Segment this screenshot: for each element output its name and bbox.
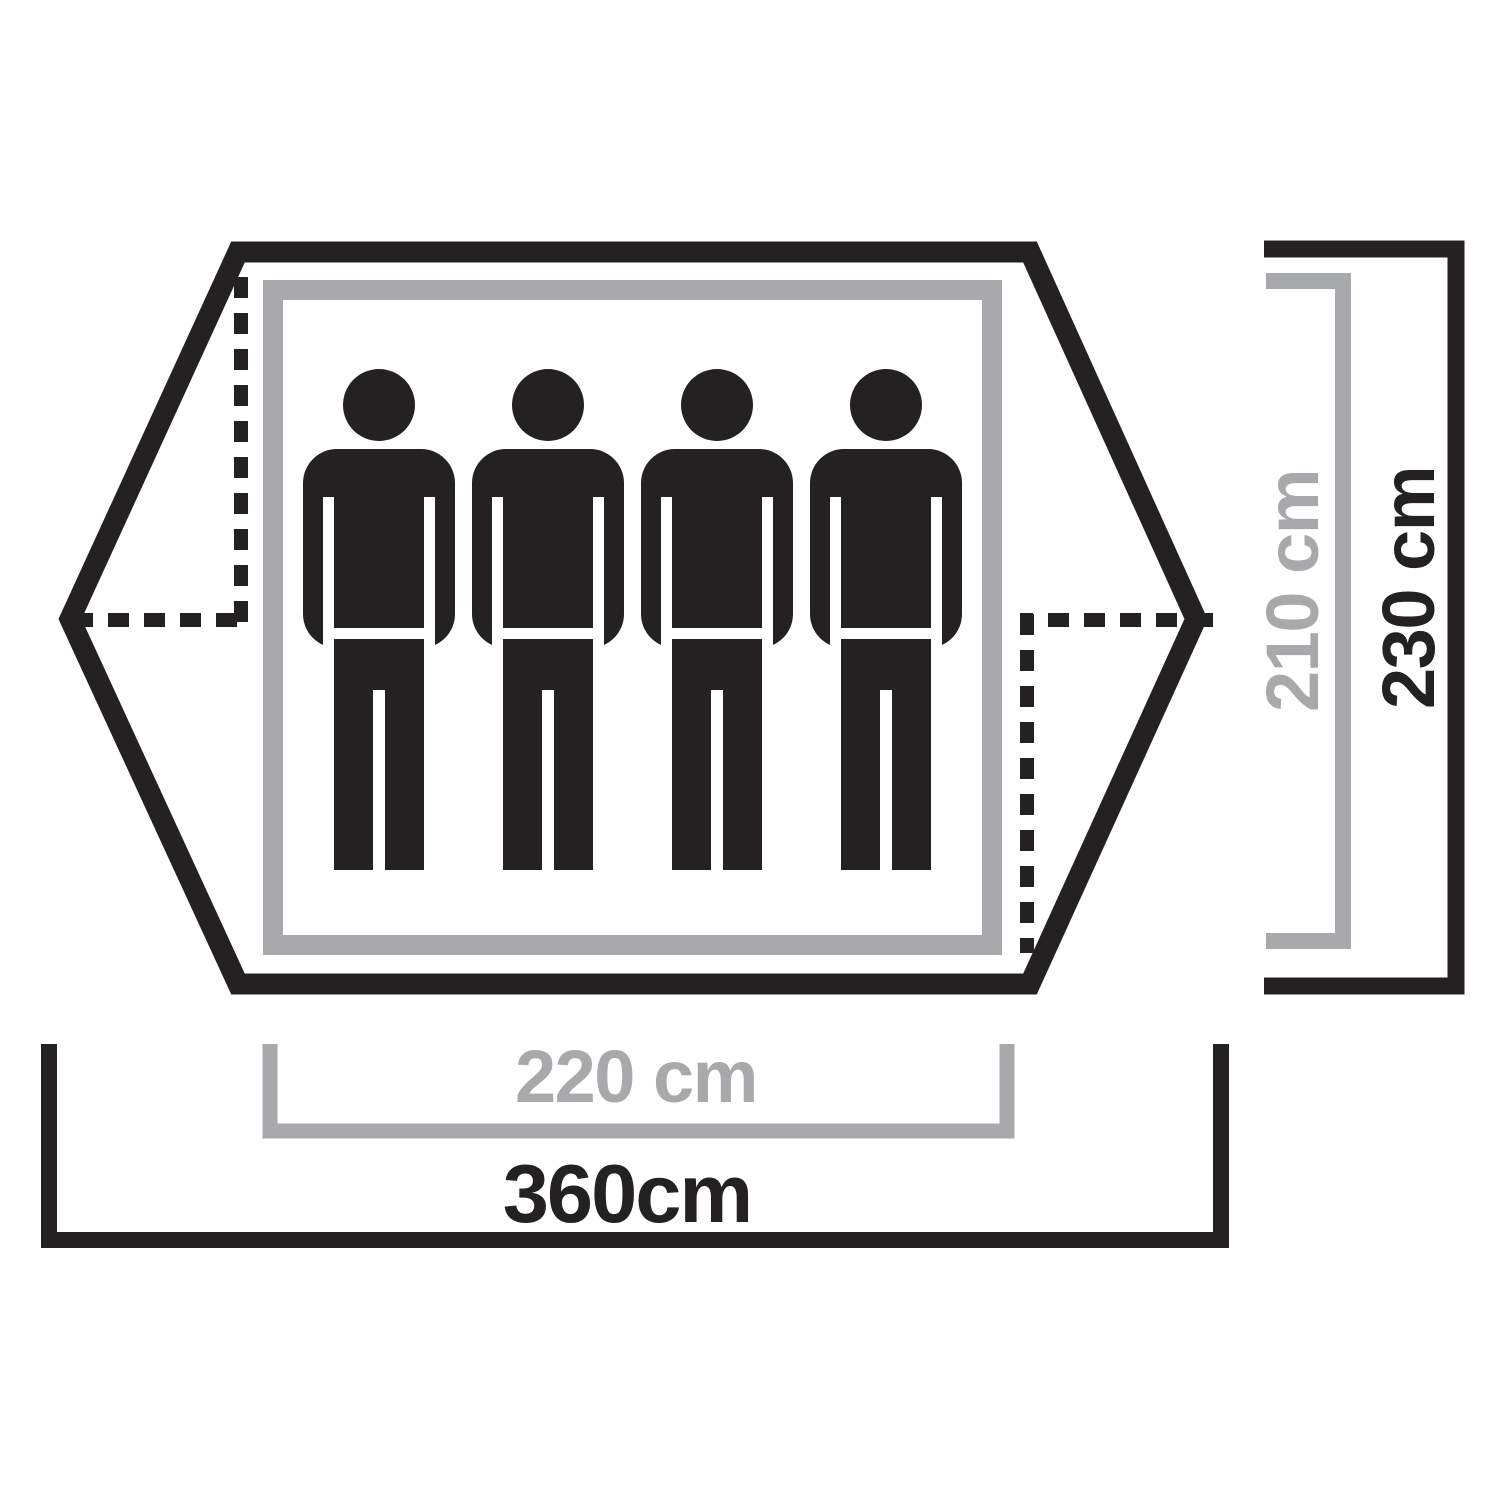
inner-depth-label: 210 cm xyxy=(1251,470,1334,712)
total-width-label: 360cm xyxy=(503,1147,751,1240)
tent-dimension-diagram: 210 cm 230 cm 220 cm 360cm xyxy=(0,0,1500,1500)
tent-dimension-diagram-page: 210 cm 230 cm 220 cm 360cm xyxy=(0,0,1500,1500)
total-depth-label: 230 cm xyxy=(1367,467,1450,709)
inner-width-label: 220 cm xyxy=(515,1035,757,1118)
